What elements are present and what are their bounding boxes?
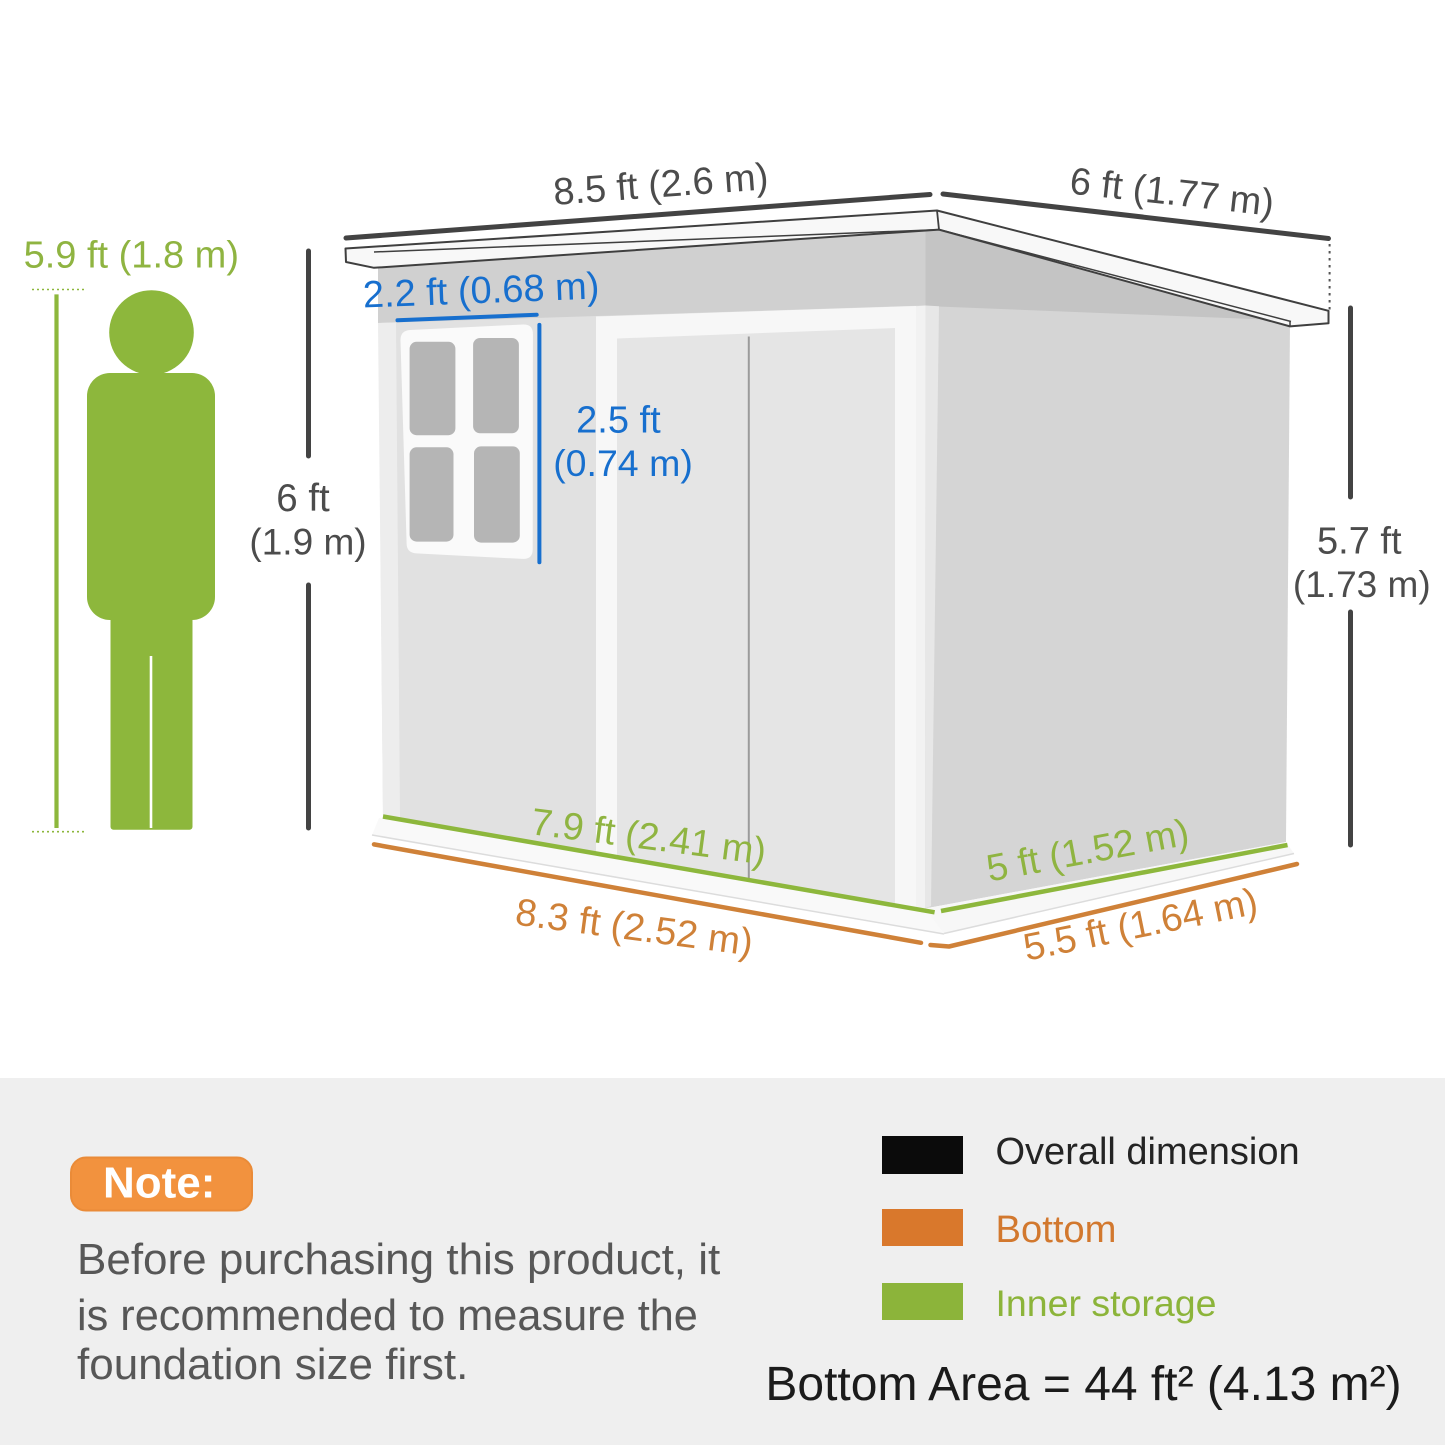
svg-text:(1.73 m): (1.73 m)	[1293, 564, 1431, 605]
svg-text:is recommended to measure the: is recommended to measure the	[77, 1292, 698, 1340]
svg-text:2.5 ft: 2.5 ft	[576, 400, 661, 442]
svg-text:5.7 ft: 5.7 ft	[1317, 520, 1402, 562]
svg-text:6 ft: 6 ft	[276, 477, 330, 520]
svg-text:Before purchasing this product: Before purchasing this product, it	[77, 1235, 720, 1284]
svg-text:Note:: Note:	[103, 1158, 215, 1207]
svg-text:Overall dimension: Overall dimension	[996, 1131, 1300, 1173]
svg-text:(1.9 m): (1.9 m)	[249, 522, 366, 563]
svg-text:Inner storage: Inner storage	[996, 1282, 1217, 1324]
svg-text:(0.74 m): (0.74 m)	[553, 442, 693, 484]
svg-text:5.9 ft (1.8 m): 5.9 ft (1.8 m)	[24, 234, 239, 276]
svg-text:Bottom: Bottom	[996, 1208, 1117, 1251]
svg-text:foundation size first.: foundation size first.	[77, 1340, 468, 1389]
svg-text:Bottom Area = 44 ft² (4.13 m²): Bottom Area = 44 ft² (4.13 m²)	[765, 1358, 1401, 1411]
